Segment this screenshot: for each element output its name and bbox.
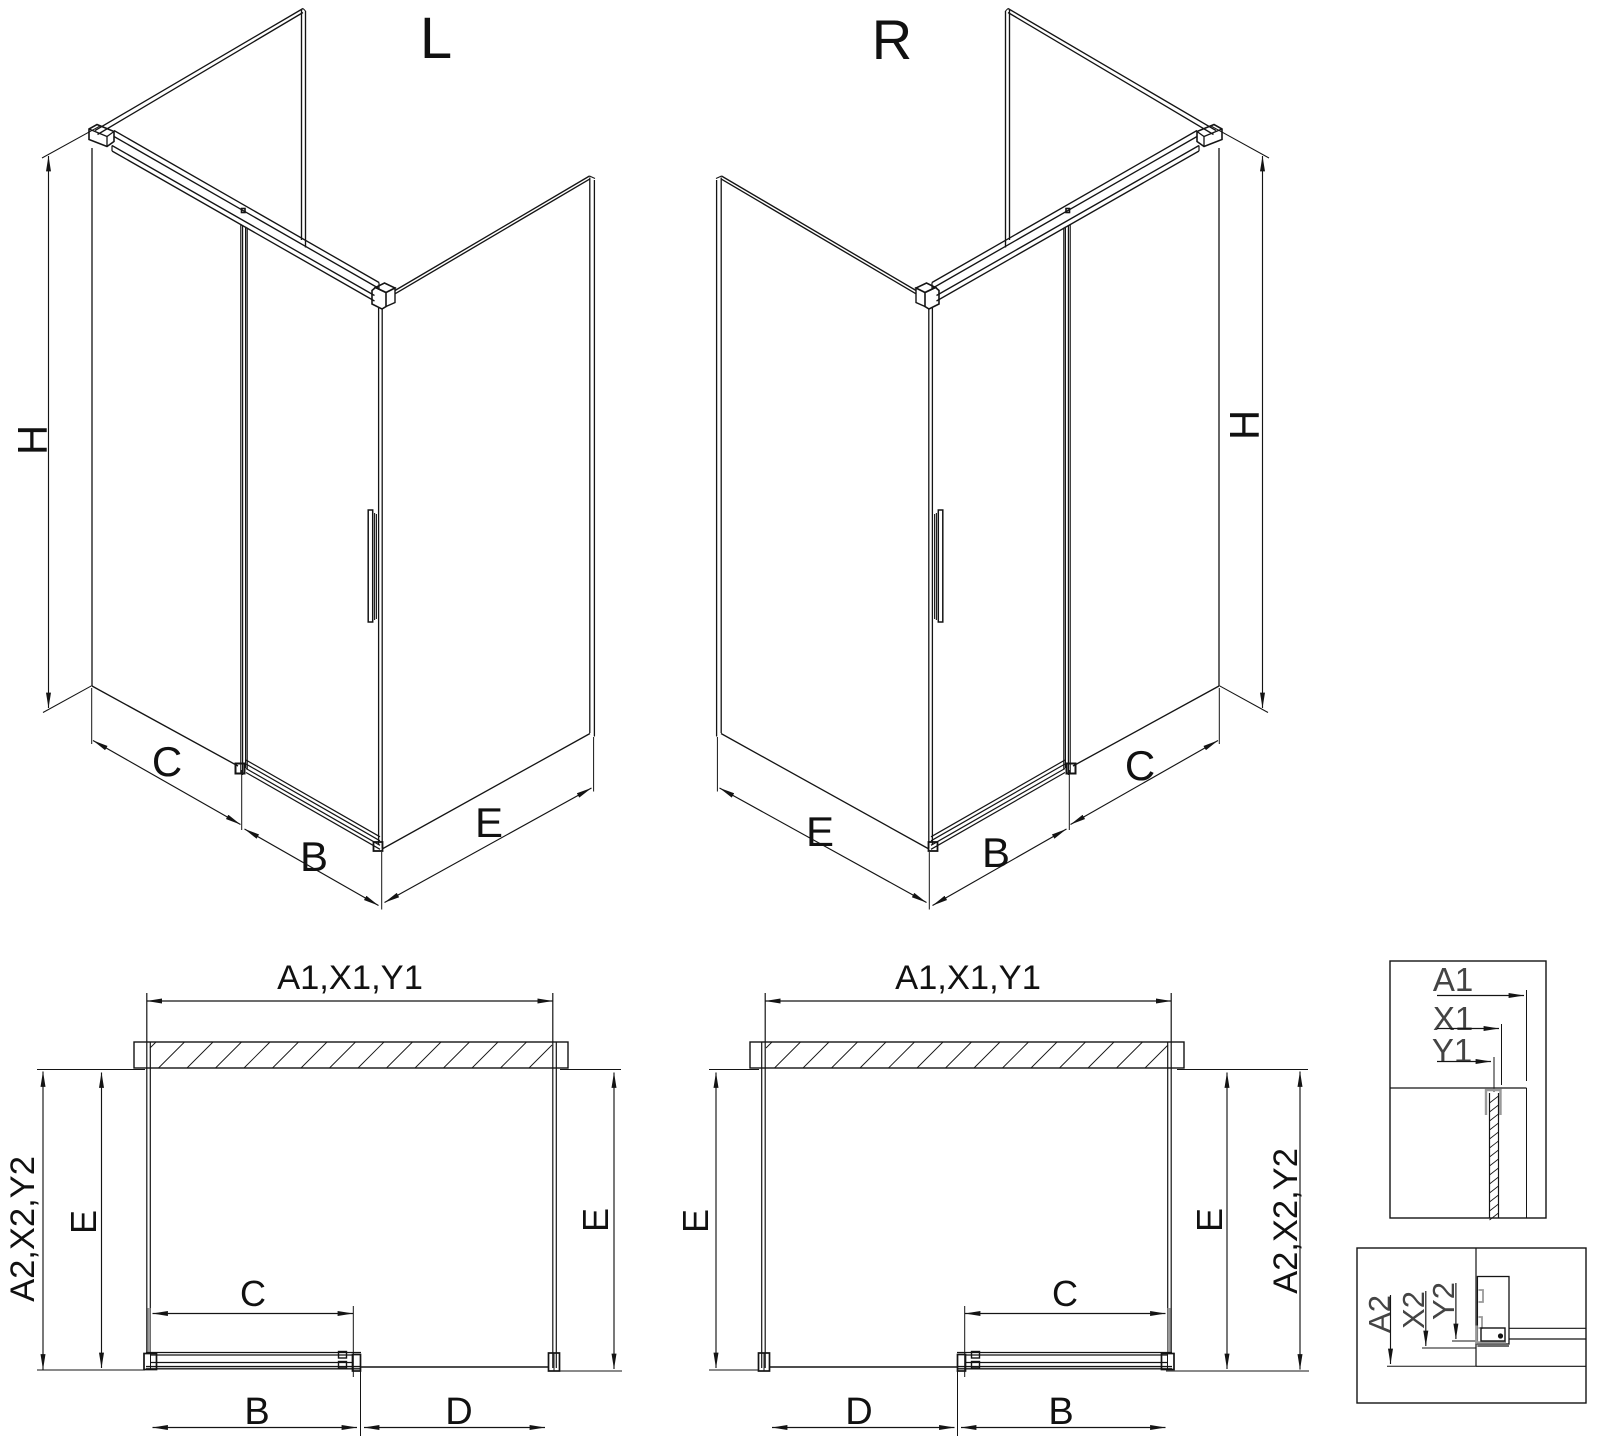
svg-text:E: E — [575, 1208, 616, 1232]
svg-text:Y1: Y1 — [1432, 1032, 1472, 1069]
svg-text:B: B — [982, 829, 1010, 876]
svg-text:D: D — [445, 1391, 472, 1433]
svg-text:B: B — [300, 833, 328, 880]
svg-text:B: B — [244, 1391, 269, 1433]
svg-text:B: B — [1048, 1391, 1073, 1433]
svg-text:E: E — [475, 799, 503, 846]
svg-text:R: R — [872, 8, 912, 71]
svg-text:A2,X2,Y2: A2,X2,Y2 — [1267, 1148, 1305, 1294]
svg-text:C: C — [1125, 742, 1155, 789]
svg-text:E: E — [63, 1210, 104, 1234]
svg-text:A2,X2,Y2: A2,X2,Y2 — [4, 1156, 42, 1302]
svg-text:C: C — [240, 1273, 266, 1314]
svg-text:E: E — [675, 1209, 716, 1233]
svg-text:C: C — [1052, 1273, 1078, 1314]
svg-text:H: H — [1221, 410, 1268, 440]
svg-text:A1,X1,Y1: A1,X1,Y1 — [895, 959, 1041, 997]
svg-text:H: H — [9, 425, 56, 455]
svg-text:E: E — [806, 808, 834, 855]
svg-text:L: L — [420, 6, 452, 71]
svg-text:C: C — [152, 738, 182, 785]
svg-text:D: D — [845, 1391, 872, 1433]
svg-text:E: E — [1189, 1208, 1230, 1232]
svg-text:A1,X1,Y1: A1,X1,Y1 — [277, 959, 423, 997]
svg-text:A1: A1 — [1433, 961, 1473, 998]
svg-text:A2: A2 — [1362, 1295, 1397, 1333]
